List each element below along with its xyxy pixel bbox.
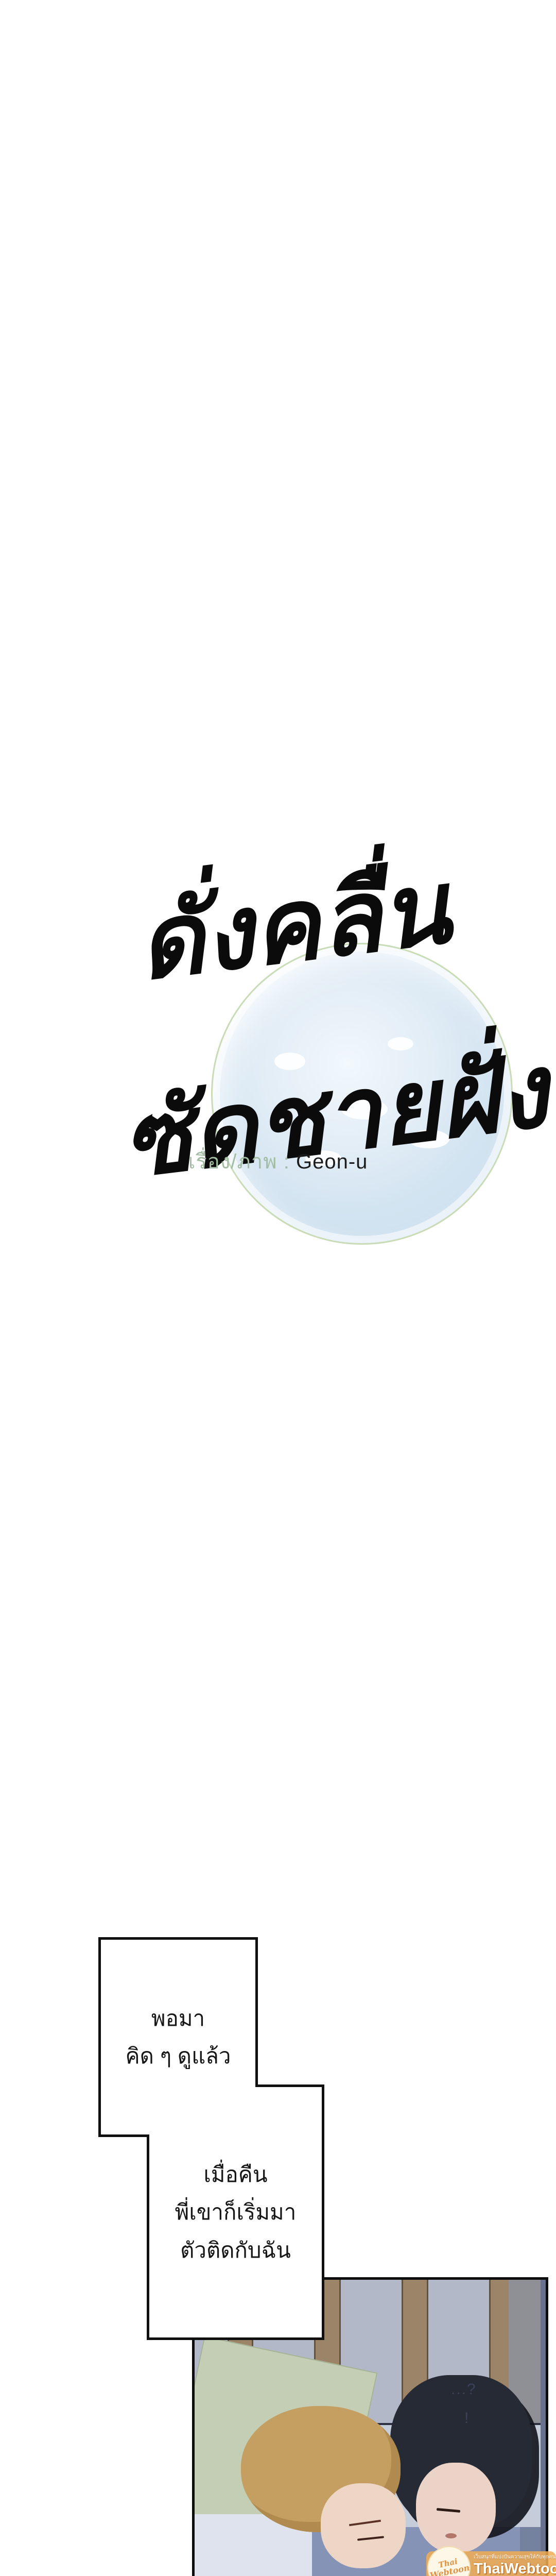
- credit-author: Geon-u: [296, 1150, 368, 1173]
- sfx-ellipsis-question: ...?: [451, 2381, 477, 2398]
- series-title-line2: ซัดชายฝั่ง: [95, 1008, 556, 1223]
- sfx-exclamation: !: [464, 2410, 468, 2427]
- credit-separator: :: [277, 1150, 296, 1173]
- narration-line: พอมา: [151, 1999, 205, 2038]
- narration-line: เมื่อคืน: [203, 2156, 267, 2194]
- credit-label: เรื่อง/ภาพ: [188, 1150, 277, 1173]
- watermark-brand: ThaiWebtoon: [474, 2561, 555, 2576]
- narration-text-2: เมื่อคืน พี่เขาก็เริ่มมา ตัวติดกับฉัน: [149, 2087, 322, 2337]
- narration-line: พี่เขาก็เริ่มมา: [175, 2193, 297, 2231]
- narration-line: คิด ๆ ดูแล้ว: [126, 2037, 231, 2075]
- open-mouth: [445, 2533, 457, 2538]
- thaiwebtoon-watermark: Thai Webtoon เว็บสนุกที่แบ่งปันความสุขให…: [426, 2548, 556, 2576]
- black-haired-face: [416, 2463, 496, 2553]
- blond-face: [321, 2483, 406, 2568]
- watermark-tagline: เว็บสนุกที่แบ่งปันความสุขให้กับทุกคน: [474, 2553, 555, 2561]
- webtoon-page: ดั่งคลื่น ซัดชายฝั่ง เรื่อง/ภาพ : Geon-u…: [0, 0, 556, 2576]
- author-credit: เรื่อง/ภาพ : Geon-u: [0, 1145, 556, 1178]
- narration-line: ตัวติดกับฉัน: [180, 2231, 291, 2269]
